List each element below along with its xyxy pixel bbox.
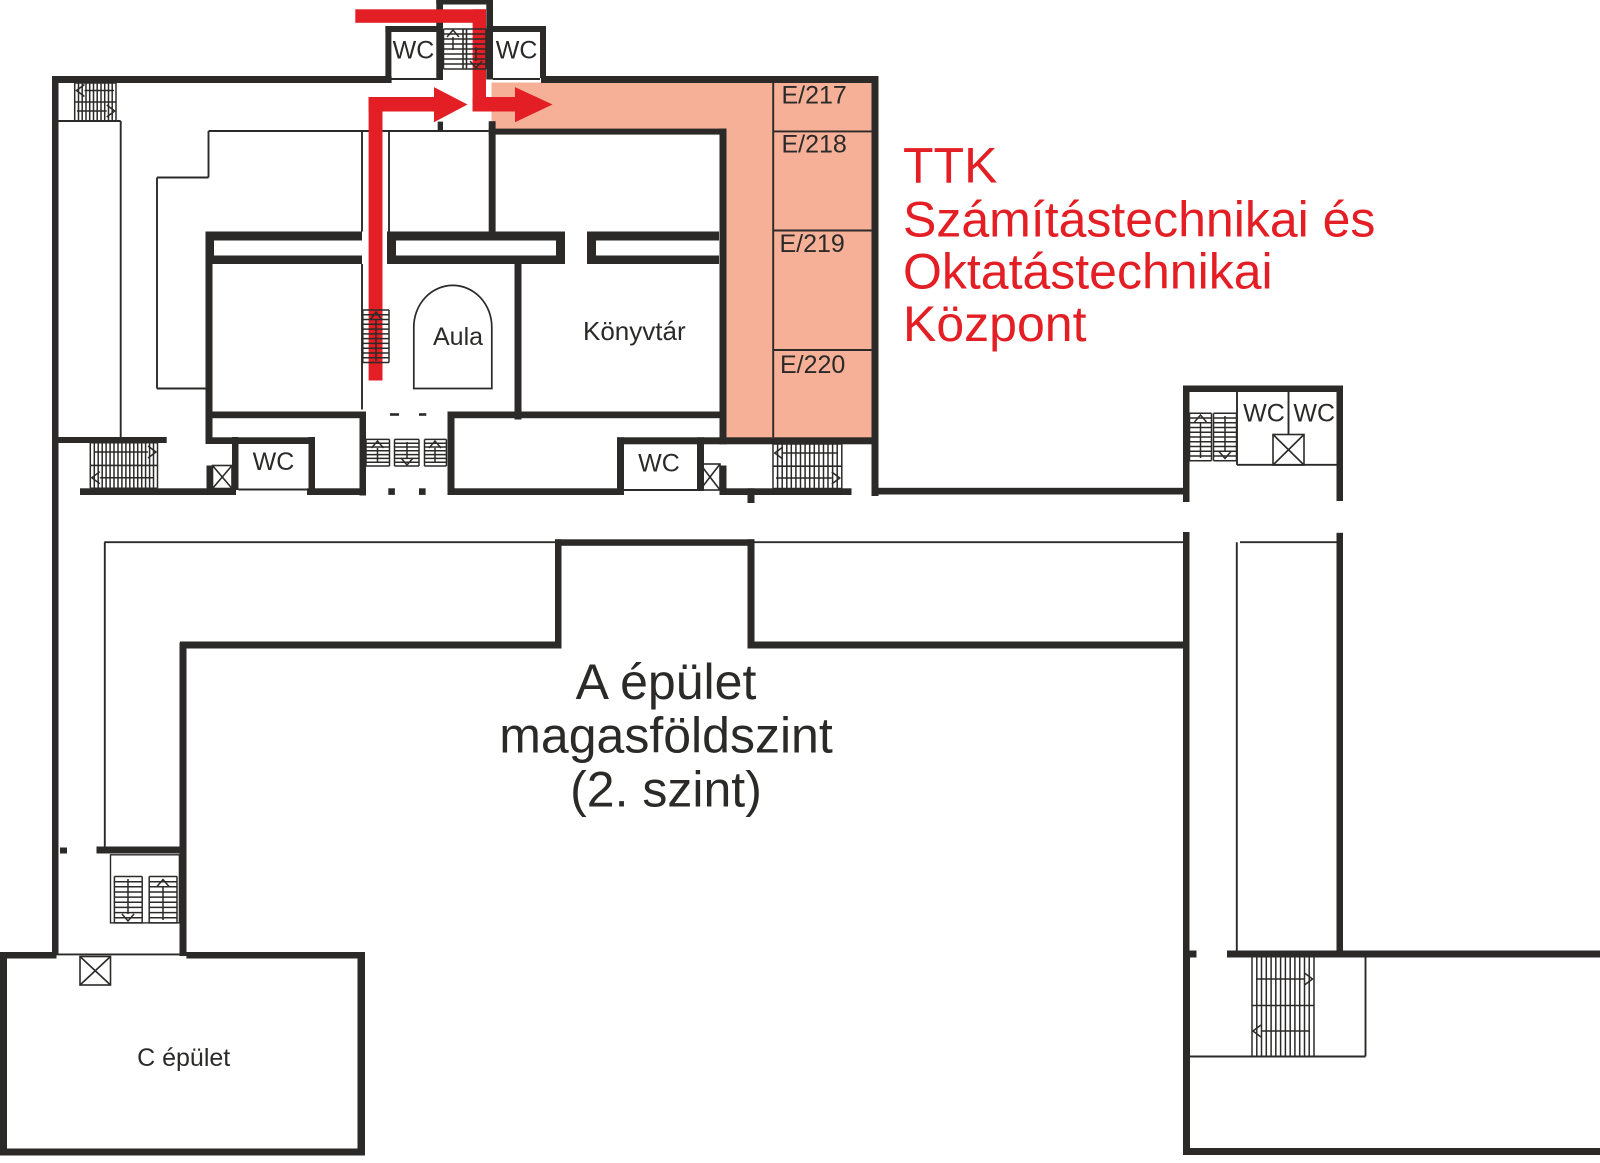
svg-text:E/218: E/218 [782, 131, 847, 159]
svg-text:WC: WC [393, 37, 435, 65]
svg-text:C épület: C épület [137, 1044, 230, 1072]
svg-text:Oktatástechnikai: Oktatástechnikai [903, 244, 1273, 300]
svg-text:WC: WC [253, 448, 295, 476]
svg-text:WC: WC [1293, 400, 1335, 428]
svg-text:WC: WC [638, 450, 680, 478]
svg-text:WC: WC [1243, 400, 1285, 428]
svg-text:Központ: Központ [903, 296, 1087, 352]
svg-text:(2. szint): (2. szint) [570, 761, 762, 817]
svg-text:E/217: E/217 [782, 81, 847, 109]
svg-text:Aula: Aula [433, 323, 483, 351]
svg-text:magasföldszint: magasföldszint [499, 708, 833, 764]
svg-text:TTK: TTK [903, 137, 997, 193]
svg-text:A épület: A épület [576, 654, 757, 710]
svg-text:Könyvtár: Könyvtár [583, 316, 686, 346]
svg-text:E/219: E/219 [780, 230, 845, 258]
svg-text:WC: WC [496, 37, 538, 65]
svg-text:E/220: E/220 [780, 351, 845, 379]
svg-text:Számítástechnikai és: Számítástechnikai és [903, 191, 1375, 247]
